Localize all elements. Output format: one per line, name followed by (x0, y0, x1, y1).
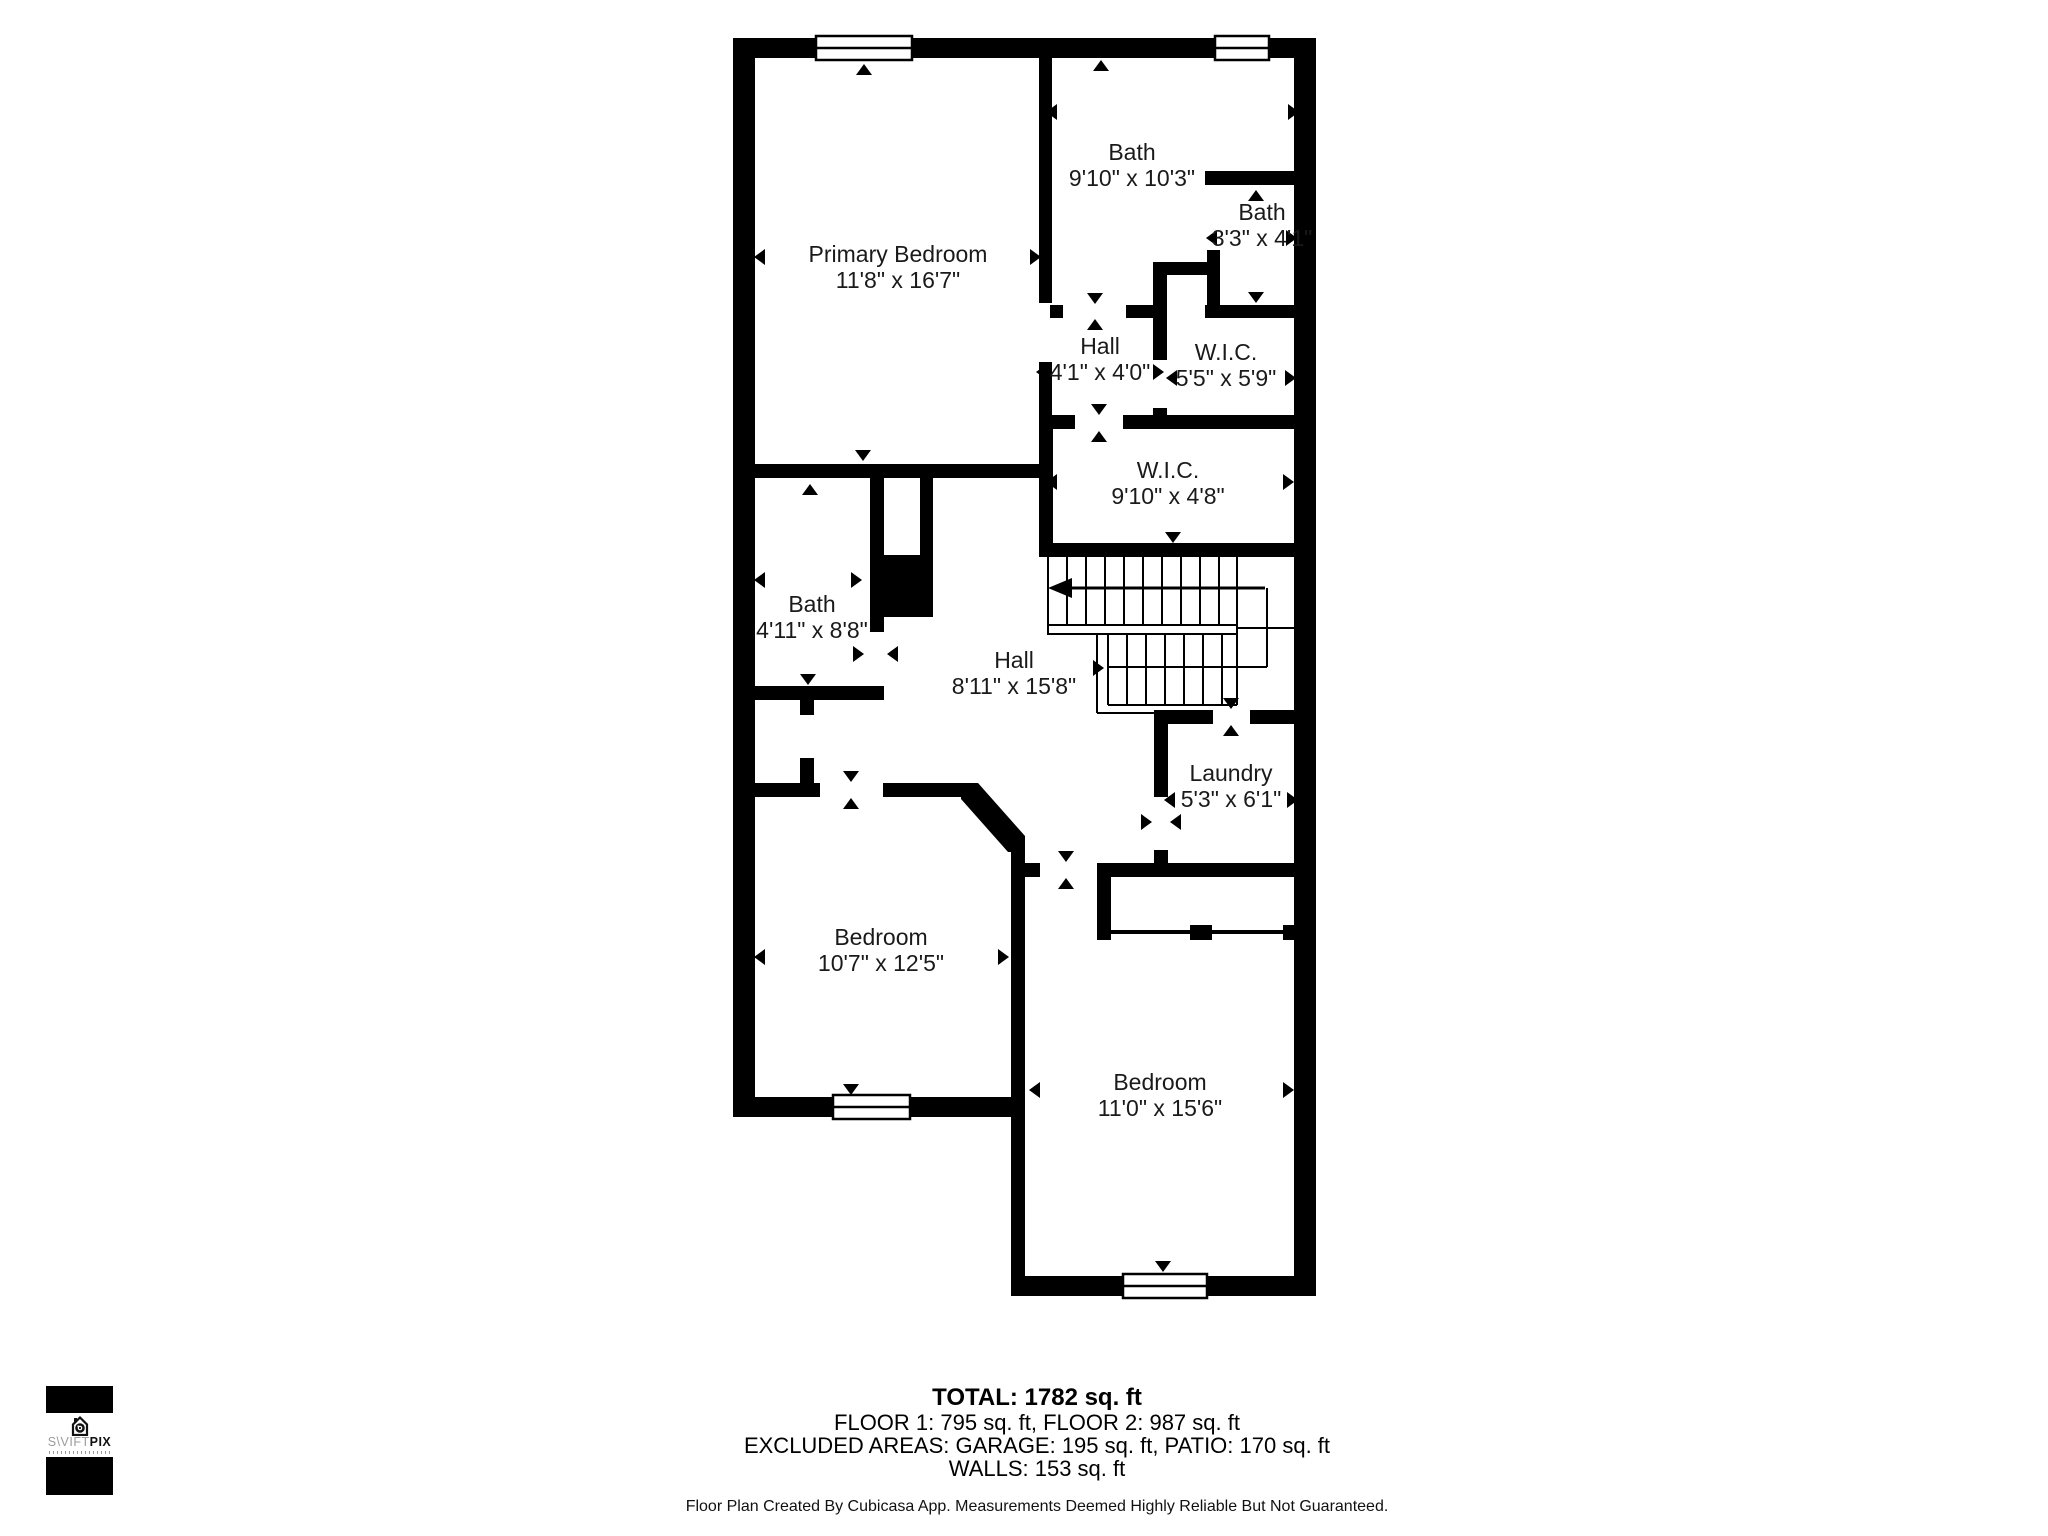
room-label-wic-large: W.I.C. 9'10" x 4'8" (1111, 457, 1224, 509)
room-dims: 4'11" x 8'8" (756, 617, 868, 643)
shaft (870, 555, 933, 617)
walls-area-text: WALLS: 153 sq. ft (26, 1457, 2048, 1480)
wall-segment (1250, 710, 1294, 724)
floors-area-text: FLOOR 1: 795 sq. ft, FLOOR 2: 987 sq. ft (26, 1411, 2048, 1434)
excluded-area-text: EXCLUDED AREAS: GARAGE: 195 sq. ft, PATI… (26, 1434, 2048, 1457)
logo-text-bold: PIX (90, 1435, 112, 1449)
wall-segment (1039, 429, 1053, 557)
disclaimer-text: Floor Plan Created By Cubicasa App. Meas… (26, 1498, 2048, 1516)
room-name: Bath (788, 591, 835, 617)
room-dims: 11'0" x 15'6" (1098, 1095, 1222, 1121)
room-label-bath-mid: Bath 4'11" x 8'8" (756, 591, 868, 643)
room-dims: 4'1" x 4'0" (1050, 359, 1151, 385)
diagonal-wall (961, 783, 1025, 852)
wall-segment (1039, 58, 1052, 303)
logo-wordmark: S\VIFTPIX (46, 1436, 113, 1449)
wall-segment (1154, 710, 1168, 797)
wall-segment (1205, 305, 1294, 318)
wall-segment (1153, 262, 1167, 360)
room-label-hall-large: Hall 8'11" x 15'8" (952, 647, 1076, 699)
room-dims: 5'5" x 5'9" (1176, 365, 1277, 391)
wall-segment (800, 700, 814, 715)
room-label-bedroom-left: Bedroom 10'7" x 12'5" (818, 924, 944, 976)
room-dims: 11'8" x 16'7" (836, 267, 960, 293)
wall-segment (1011, 1276, 1123, 1296)
wall-segment (733, 464, 1052, 478)
wall-segment (1039, 543, 1297, 557)
room-name: Bath (1238, 199, 1285, 225)
wall-segment (1126, 305, 1155, 318)
room-dims: 9'10" x 4'8" (1111, 483, 1224, 509)
wall-segment (733, 686, 884, 700)
room-name: Hall (1080, 333, 1120, 359)
staircase (1048, 553, 1294, 713)
house-camera-icon (67, 1414, 93, 1436)
logo-text-light: S\VIFT (48, 1435, 90, 1449)
logo-top-block (46, 1386, 113, 1413)
wall-segment (1205, 171, 1294, 185)
total-area-text: TOTAL: 1782 sq. ft (26, 1385, 2048, 1411)
room-name: Bedroom (834, 924, 927, 950)
wall-segment (1123, 415, 1294, 429)
room-name: Bedroom (1113, 1069, 1206, 1095)
room-label-wic-small: W.I.C. 5'5" x 5'9" (1176, 339, 1277, 391)
wall-segment (733, 783, 820, 797)
wall-segment (1154, 850, 1168, 863)
wall-segment (800, 758, 814, 783)
wall-segment (1207, 1276, 1294, 1296)
wall-segment (912, 38, 1215, 58)
room-dims: 5'3" x 6'1" (1181, 786, 1282, 812)
wall-segment (910, 1097, 1025, 1117)
room-dims: 8'11" x 15'8" (952, 673, 1076, 699)
wall-segment (733, 38, 755, 1117)
wall-segment (1097, 863, 1111, 940)
wall-segment (733, 1097, 833, 1117)
logo-tagline-strip (49, 1451, 111, 1454)
room-name: W.I.C. (1195, 339, 1258, 365)
room-name: Bath (1108, 139, 1155, 165)
wall-segment (883, 783, 961, 797)
wall-segment (1097, 863, 1294, 877)
room-name: Primary Bedroom (809, 241, 988, 267)
wall-segment (870, 478, 884, 555)
wall-segment (870, 617, 884, 632)
floor-plan-drawing: Primary Bedroom 11'8" x 16'7" Bath 9'10"… (0, 0, 2048, 1536)
stair-direction-arrow (1048, 578, 1265, 598)
room-name: Laundry (1189, 760, 1273, 786)
room-dims: 9'10" x 10'3" (1069, 165, 1195, 191)
room-label-laundry: Laundry 5'3" x 6'1" (1181, 760, 1282, 812)
room-label-bath-large: Bath 9'10" x 10'3" (1069, 139, 1195, 191)
wall-segment (1011, 849, 1025, 1296)
swiftpix-logo: S\VIFTPIX (46, 1386, 113, 1495)
room-label-primary-bedroom: Primary Bedroom 11'8" x 16'7" (809, 241, 988, 293)
room-name: W.I.C. (1137, 457, 1200, 483)
room-dims: 10'7" x 12'5" (818, 950, 944, 976)
floor-plan-page: Primary Bedroom 11'8" x 16'7" Bath 9'10"… (0, 0, 2048, 1536)
wall-segment (1039, 415, 1075, 429)
room-dims: 3'3" x 4'1" (1212, 225, 1313, 251)
room-label-bedroom-right: Bedroom 11'0" x 15'6" (1098, 1069, 1222, 1121)
room-name: Hall (994, 647, 1034, 673)
logo-bottom-block (46, 1457, 113, 1495)
wall-segment (920, 478, 933, 555)
area-summary: TOTAL: 1782 sq. ft FLOOR 1: 795 sq. ft, … (26, 1385, 2048, 1516)
stair-landing (1048, 625, 1237, 634)
wall-segment (1025, 863, 1040, 877)
wall-segment (1050, 305, 1063, 318)
room-label-hall-small: Hall 4'1" x 4'0" (1050, 333, 1151, 385)
